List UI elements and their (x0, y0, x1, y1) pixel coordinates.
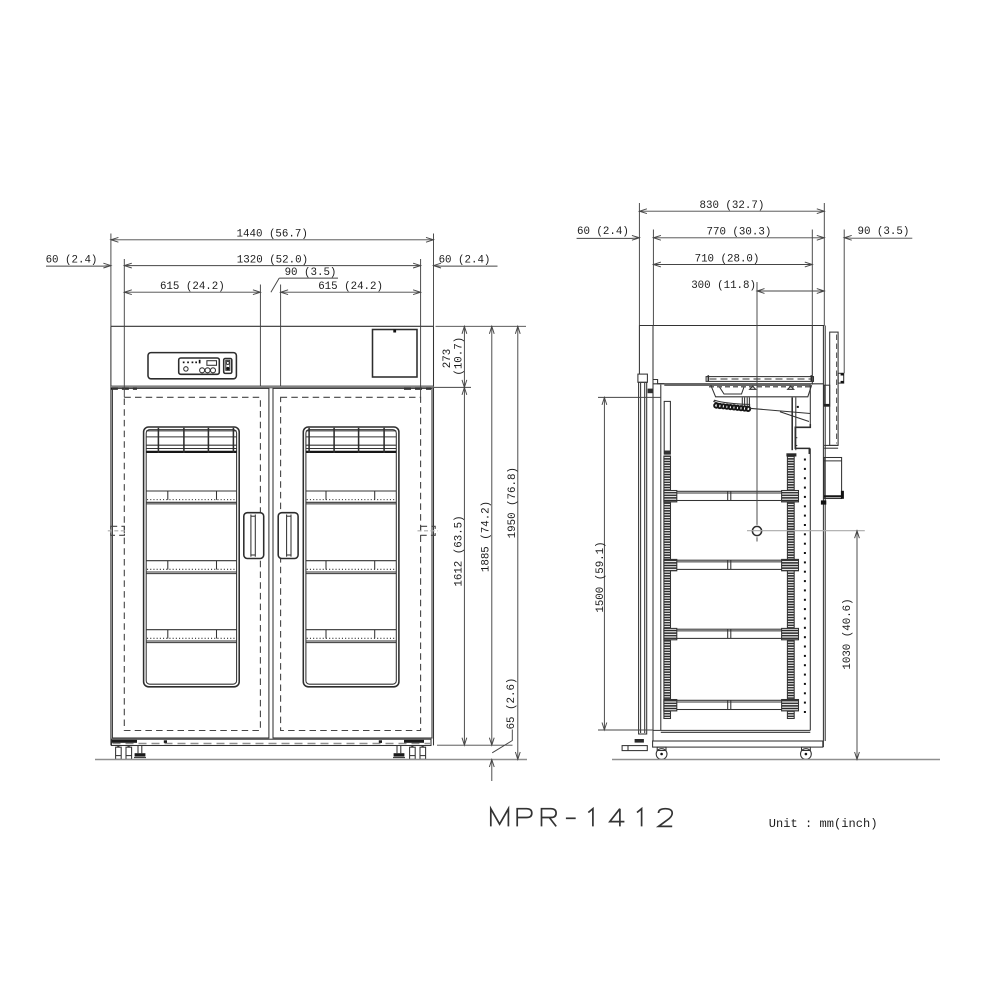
svg-text:1612 (63.5): 1612 (63.5) (453, 515, 465, 586)
svg-text:1500 (59.1): 1500 (59.1) (595, 541, 607, 612)
svg-text:273: 273 (442, 349, 454, 368)
svg-text:1885 (74.2): 1885 (74.2) (480, 501, 492, 572)
svg-text:615 (24.2): 615 (24.2) (318, 281, 383, 293)
svg-text:1950 (76.8): 1950 (76.8) (507, 467, 519, 538)
svg-text:830 (32.7): 830 (32.7) (700, 200, 765, 212)
svg-text:1030 (40.6): 1030 (40.6) (842, 598, 854, 669)
svg-text:710 (28.0): 710 (28.0) (695, 253, 760, 265)
svg-text:65 (2.6): 65 (2.6) (506, 678, 518, 730)
svg-text:615 (24.2): 615 (24.2) (160, 281, 225, 293)
svg-text:60 (2.4): 60 (2.4) (46, 255, 98, 267)
svg-text:1320 (52.0): 1320 (52.0) (237, 254, 308, 266)
svg-text:60 (2.4): 60 (2.4) (439, 255, 491, 267)
svg-text:90 (3.5): 90 (3.5) (285, 267, 337, 279)
svg-text:(10.7): (10.7) (453, 337, 465, 376)
svg-text:60 (2.4): 60 (2.4) (577, 226, 629, 238)
svg-text:300 (11.8): 300 (11.8) (691, 280, 756, 292)
svg-text:Unit : mm(inch): Unit : mm(inch) (769, 817, 878, 831)
svg-text:770 (30.3): 770 (30.3) (707, 227, 772, 239)
svg-text:1440 (56.7): 1440 (56.7) (237, 229, 308, 241)
svg-text:90 (3.5): 90 (3.5) (857, 226, 909, 238)
